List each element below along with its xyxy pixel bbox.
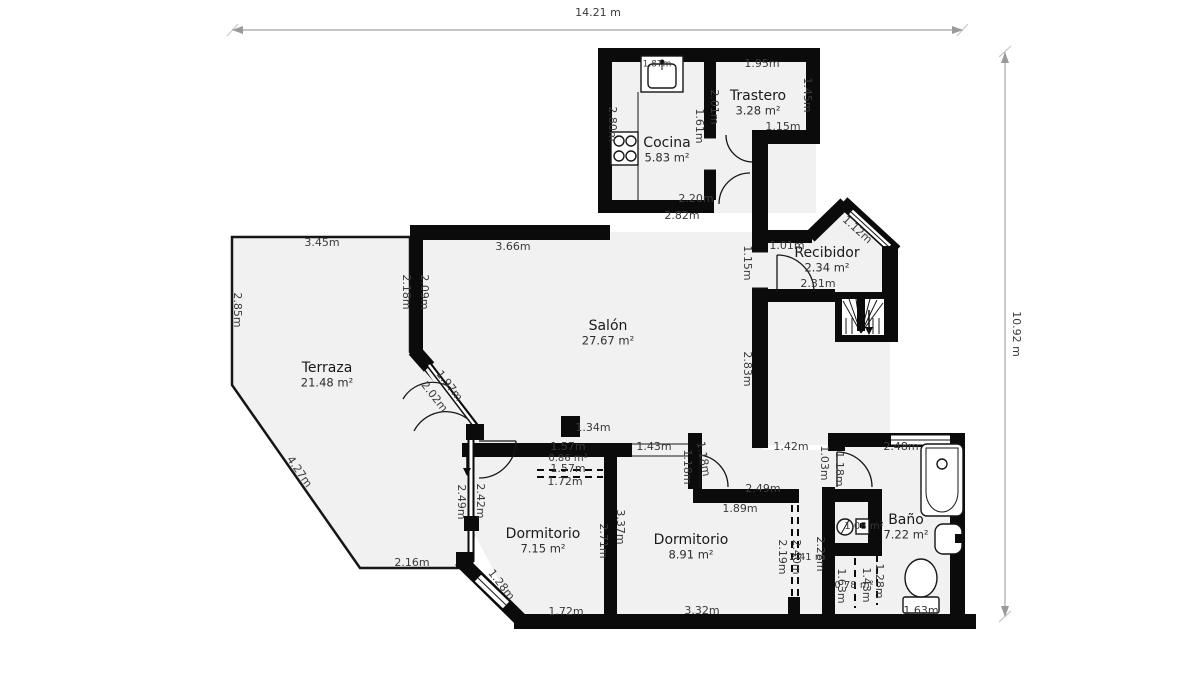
room-area-label: 27.67 m² <box>582 334 634 348</box>
dimension-label: 2.20m <box>678 192 713 205</box>
dimension-label: 2.82m <box>664 209 699 222</box>
dimension-label: 2.09m <box>418 274 431 309</box>
room-area-label: 8.91 m² <box>668 548 713 562</box>
room-area-label: 2.34 m² <box>804 261 849 275</box>
dimension-label: 2.49m <box>745 482 780 495</box>
staircase <box>835 292 891 342</box>
dimension-label: 1.57m <box>550 440 585 453</box>
dimension-label: 1.43m <box>636 440 671 453</box>
room-area-label: 7.22 m² <box>883 528 928 542</box>
dimension-label: 1.61m <box>693 108 706 143</box>
dimension-label: 1.15m <box>765 120 800 133</box>
room-name-ba-o: Baño <box>888 512 924 528</box>
dimension-label: 10.92 m <box>1010 311 1023 357</box>
dimension-label: 1.89m <box>722 502 757 515</box>
room-name-terraza: Terraza <box>301 360 353 376</box>
dimension-label: 3.32m <box>684 604 719 617</box>
dimension-label: 3.37m <box>614 509 627 544</box>
dimension-label: 1.57m <box>550 462 585 475</box>
dimension-label: 1.34m <box>575 421 610 434</box>
dimension-label: 1.18m <box>681 449 694 484</box>
dimension-label: 1.42m <box>773 440 808 453</box>
dimension-label: 2.42m <box>474 483 487 518</box>
dimension-label: 1.18m <box>833 451 846 486</box>
dimension-label: 2.28m <box>814 536 827 571</box>
bathroom-sink <box>935 524 962 554</box>
dimension-label: 1.72m <box>548 605 583 618</box>
dimension-label: 1.43m <box>860 567 873 602</box>
dimension-label: 2.71m <box>597 523 610 558</box>
dimension-label: 1.28m <box>873 563 886 598</box>
room-name-dormitorio: Dormitorio <box>654 532 729 548</box>
room-name-cocina: Cocina <box>643 135 690 151</box>
dimension-label: 2.31m <box>800 277 835 290</box>
dimension-label: 3.66m <box>495 240 530 253</box>
dimension-label: 2.85m <box>231 292 244 327</box>
dimension-label: 1.03m <box>818 445 831 480</box>
floorplan-canvas: Cocina5.83 m²Trastero3.28 m²Recibidor2.3… <box>0 0 1200 675</box>
dimension-label: 3.45m <box>304 236 339 249</box>
dimension-label: 2.80m <box>606 106 619 141</box>
dimension-label: 2.16m <box>394 556 429 569</box>
room-name-dormitorio: Dormitorio <box>506 526 581 542</box>
dimension-label: 2.19m <box>776 539 789 574</box>
dimension-label: 2.18m <box>400 274 413 309</box>
room-area-label: 3.28 m² <box>735 104 780 118</box>
dimension-label: 1.08 m² <box>844 521 883 532</box>
dimension-label: 14.21 m <box>575 6 621 19</box>
room-area-label: 5.83 m² <box>644 151 689 165</box>
dimension-label: 1.63m <box>903 604 938 617</box>
bathtub <box>921 444 963 516</box>
room-name-sal-n: Salón <box>589 318 628 334</box>
floorplan-svg: Cocina5.83 m²Trastero3.28 m²Recibidor2.3… <box>0 0 1200 675</box>
room-area-label: 7.15 m² <box>520 542 565 556</box>
dimension-label: 2.49m <box>455 484 468 519</box>
dimension-label: 1.95m <box>744 57 779 70</box>
dimension-label: 1.45m <box>801 77 814 112</box>
dimension-label: 1.87m <box>643 60 672 70</box>
dimension-label: 1.15m <box>741 245 754 280</box>
room-area-label: 21.48 m² <box>301 376 353 390</box>
dimension-label: 2.48m <box>883 440 918 453</box>
room-name-trastero: Trastero <box>729 88 786 104</box>
dimension-label: 1.72m <box>547 475 582 488</box>
dimension-label: 2.83m <box>741 351 754 386</box>
dimension-label: 1.01m <box>769 239 804 252</box>
dimension-label: 2.01m <box>708 89 721 124</box>
